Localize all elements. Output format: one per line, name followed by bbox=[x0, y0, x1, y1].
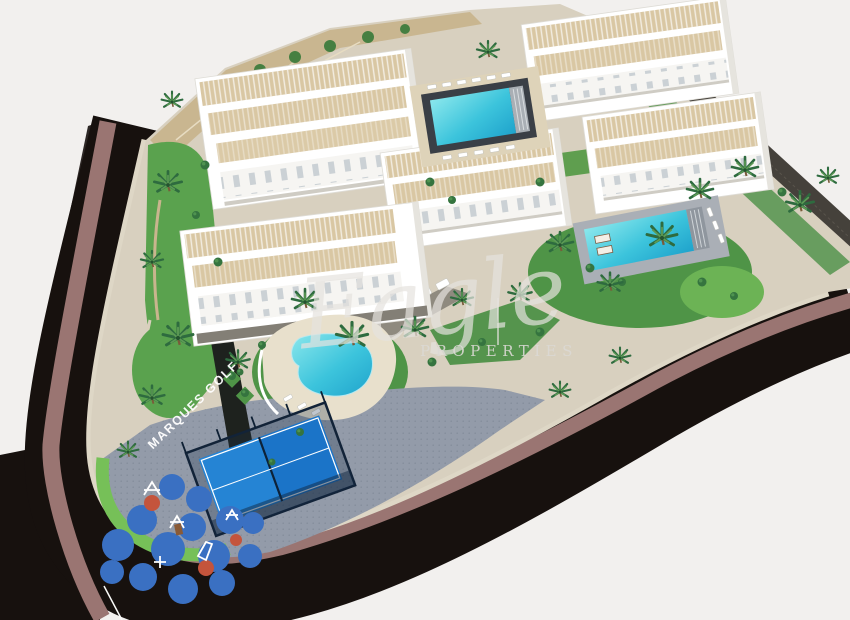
render-canvas: MARQUES GOLF Eagle PROPERTIES bbox=[0, 0, 850, 620]
watermark-caps: PROPERTIES bbox=[420, 342, 578, 360]
aerial-render: MARQUES GOLF Eagle PROPERTIES bbox=[0, 0, 850, 620]
